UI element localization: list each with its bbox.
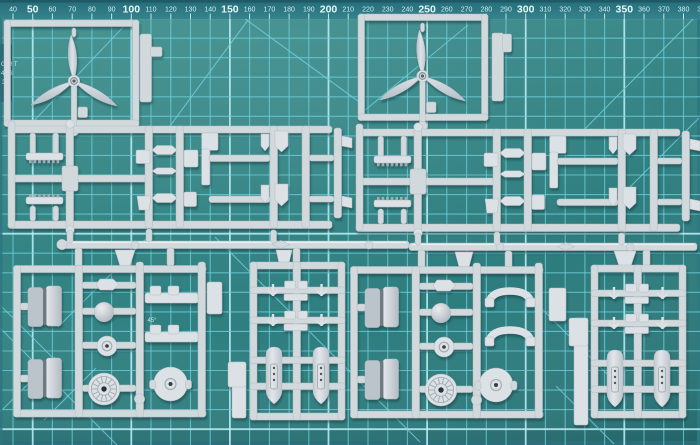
svg-text:280: 280 [480,7,492,14]
svg-text:190: 190 [303,7,315,14]
svg-text:210: 210 [342,7,354,14]
svg-text:100: 100 [123,4,141,16]
svg-text:240: 240 [402,7,414,14]
svg-text:300: 300 [517,4,535,16]
svg-text:40: 40 [9,7,17,14]
svg-text:50: 50 [27,4,39,16]
svg-text:330: 330 [579,7,591,14]
svg-text:350: 350 [616,4,634,16]
svg-text:45°: 45° [147,318,157,324]
svg-text:80: 80 [88,7,96,14]
svg-text:290: 290 [500,7,512,14]
svg-text:380: 380 [678,7,690,14]
svg-text:70: 70 [68,7,76,14]
svg-text:270: 270 [461,7,473,14]
svg-text:230: 230 [382,7,394,14]
svg-text:360: 360 [638,7,650,14]
svg-text:160: 160 [244,7,256,14]
svg-text:130: 130 [185,7,197,14]
svg-text:110: 110 [145,7,156,14]
svg-text:200: 200 [320,4,338,16]
svg-text:310: 310 [540,7,552,14]
svg-text:170: 170 [264,7,276,14]
svg-text:220: 220 [362,7,374,14]
svg-text:180: 180 [283,7,295,14]
svg-text:250: 250 [418,4,436,16]
svg-text:120: 120 [165,7,177,14]
svg-text:340: 340 [599,7,611,14]
svg-text:320: 320 [559,7,571,14]
svg-text:140: 140 [204,7,216,14]
svg-text:260: 260 [441,7,453,14]
svg-text:370: 370 [658,7,670,14]
svg-text:60: 60 [49,7,57,14]
svg-text:90: 90 [108,7,116,14]
svg-text:150: 150 [221,4,239,16]
